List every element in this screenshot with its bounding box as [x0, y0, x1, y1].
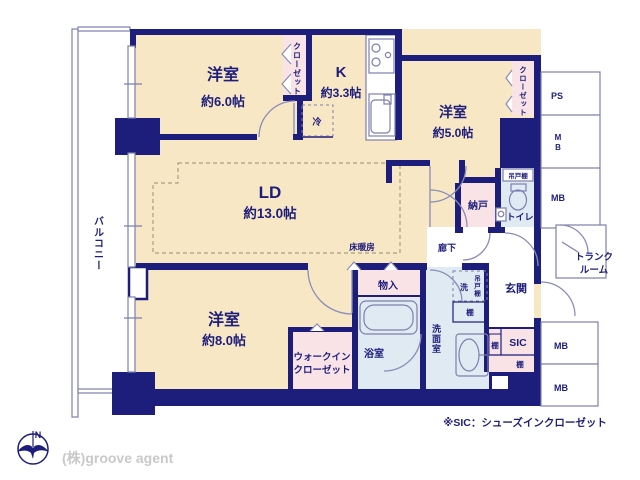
- ps-mb-column: [541, 72, 600, 228]
- genkan-label: 玄関: [505, 281, 527, 295]
- ps-label: PS: [551, 91, 563, 101]
- sic-label: SIC: [509, 337, 527, 349]
- wall-bottom: [155, 389, 540, 406]
- wall-stub2: [386, 160, 392, 183]
- pillar-bottom-left: [112, 372, 155, 415]
- window: [128, 46, 135, 118]
- wall-bedroom2-bottom: [386, 160, 430, 166]
- wall-closet1-right: [306, 35, 312, 101]
- floor-heating-label: 床暖房: [349, 242, 375, 252]
- wic-label-line1: ウォークイン: [293, 352, 350, 363]
- floorplan-svg: 洋室 約6.0帖 クローゼット K 約3.3帖 冷 洋室 約5.0帖 クローゼッ…: [0, 0, 640, 480]
- credit-text: (株)groove agent: [62, 450, 174, 466]
- mb-bottom1-label: MB: [554, 341, 568, 351]
- kitchen-name-label: K: [336, 64, 347, 81]
- mb-box-2: [541, 364, 598, 406]
- bedroom3-name-label: 洋室: [208, 310, 240, 329]
- wall-bath-right: [420, 263, 426, 389]
- kitchen-size-label: 約3.3帖: [321, 85, 362, 100]
- bedroom1-size-label: 約6.0帖: [201, 94, 245, 109]
- bedroom2-name-label: 洋室: [439, 104, 467, 120]
- toilet-label: トイレ: [506, 212, 533, 222]
- wall-right-upper: [534, 55, 541, 118]
- mb-bottom2-label: MB: [554, 383, 568, 393]
- toilet-hand-basin: [496, 208, 506, 221]
- window: [128, 297, 135, 372]
- hall-label: 廊下: [438, 242, 456, 253]
- genkan-floor: [489, 267, 534, 327]
- wall-wic-left: [288, 327, 293, 389]
- mb-mid-label: MB: [551, 193, 565, 203]
- wall-nando-bottom-l: [455, 227, 463, 233]
- bedroom2-size-label: 約5.0帖: [433, 125, 474, 140]
- window: [128, 153, 135, 267]
- shelf-sic-bottom-label: 棚: [516, 359, 524, 369]
- exterior-boxes: [541, 72, 606, 406]
- laundry-label: 洗: [460, 282, 468, 292]
- wall-top-right: [396, 55, 541, 61]
- washroom-label: 洗面室: [431, 323, 441, 354]
- floorplan-image: 洋室 約6.0帖 クローゼット K 約3.3帖 冷 洋室 約5.0帖 クローゼッ…: [0, 0, 640, 480]
- trunk-label-line1: トランク: [575, 252, 613, 263]
- shelf-sic-left-label: 棚: [491, 340, 499, 350]
- shelf-wash-label: 棚: [466, 307, 474, 317]
- wall-right-mid: [534, 168, 541, 284]
- ld-size-label: 約13.0帖: [243, 205, 297, 221]
- trunk-label-line2: ルーム: [580, 265, 609, 276]
- wall-ld-bottom: [136, 263, 308, 270]
- compass-icon: N: [17, 430, 49, 464]
- compass-n-label: N: [35, 430, 42, 440]
- wall-top: [130, 29, 402, 35]
- balcony-rail-left: [72, 29, 78, 417]
- pillar-mb: [500, 118, 546, 168]
- wall-left-stub: [130, 29, 136, 48]
- wall-kitchen-right: [395, 29, 402, 140]
- wic-label-line2: クローゼット: [293, 364, 350, 376]
- pillar-top-left: [115, 118, 160, 155]
- closet2-label: クローゼット: [518, 66, 527, 117]
- fridge-label: 冷: [312, 116, 321, 127]
- sic-note: ※SIC：シューズインクローゼット: [443, 416, 607, 429]
- nando-label: 納戸: [468, 199, 488, 212]
- door-arc-entrance: [541, 282, 575, 316]
- bedroom1-name-label: 洋室: [207, 65, 239, 84]
- bath-floor: [352, 298, 420, 389]
- left-column: [129, 267, 147, 299]
- wall-nando-bottom-r: [488, 227, 505, 233]
- bedroom3-size-label: 約8.0帖: [202, 333, 246, 348]
- wall-bath-left: [352, 263, 358, 389]
- wall-nando-toilet: [495, 168, 501, 233]
- mb-top-label: MB: [554, 133, 563, 153]
- compass-bird-shape: [17, 445, 49, 459]
- hanging-cabinet-toilet-label: 吊戸棚: [508, 171, 528, 180]
- balcony-label: バルコニー: [92, 216, 104, 271]
- storage-label: 物入: [378, 279, 398, 292]
- ld-name-label: LD: [259, 183, 282, 202]
- mb-box-1: [541, 322, 598, 364]
- genkan-step-notch: [492, 376, 508, 389]
- closet1-label: クローゼット: [293, 42, 302, 96]
- balcony-rail-top: [78, 27, 130, 31]
- wall-bedroom1-bottom: [155, 134, 257, 140]
- balcony-rail-bottom: [78, 389, 113, 393]
- bath-label: 浴室: [364, 347, 384, 360]
